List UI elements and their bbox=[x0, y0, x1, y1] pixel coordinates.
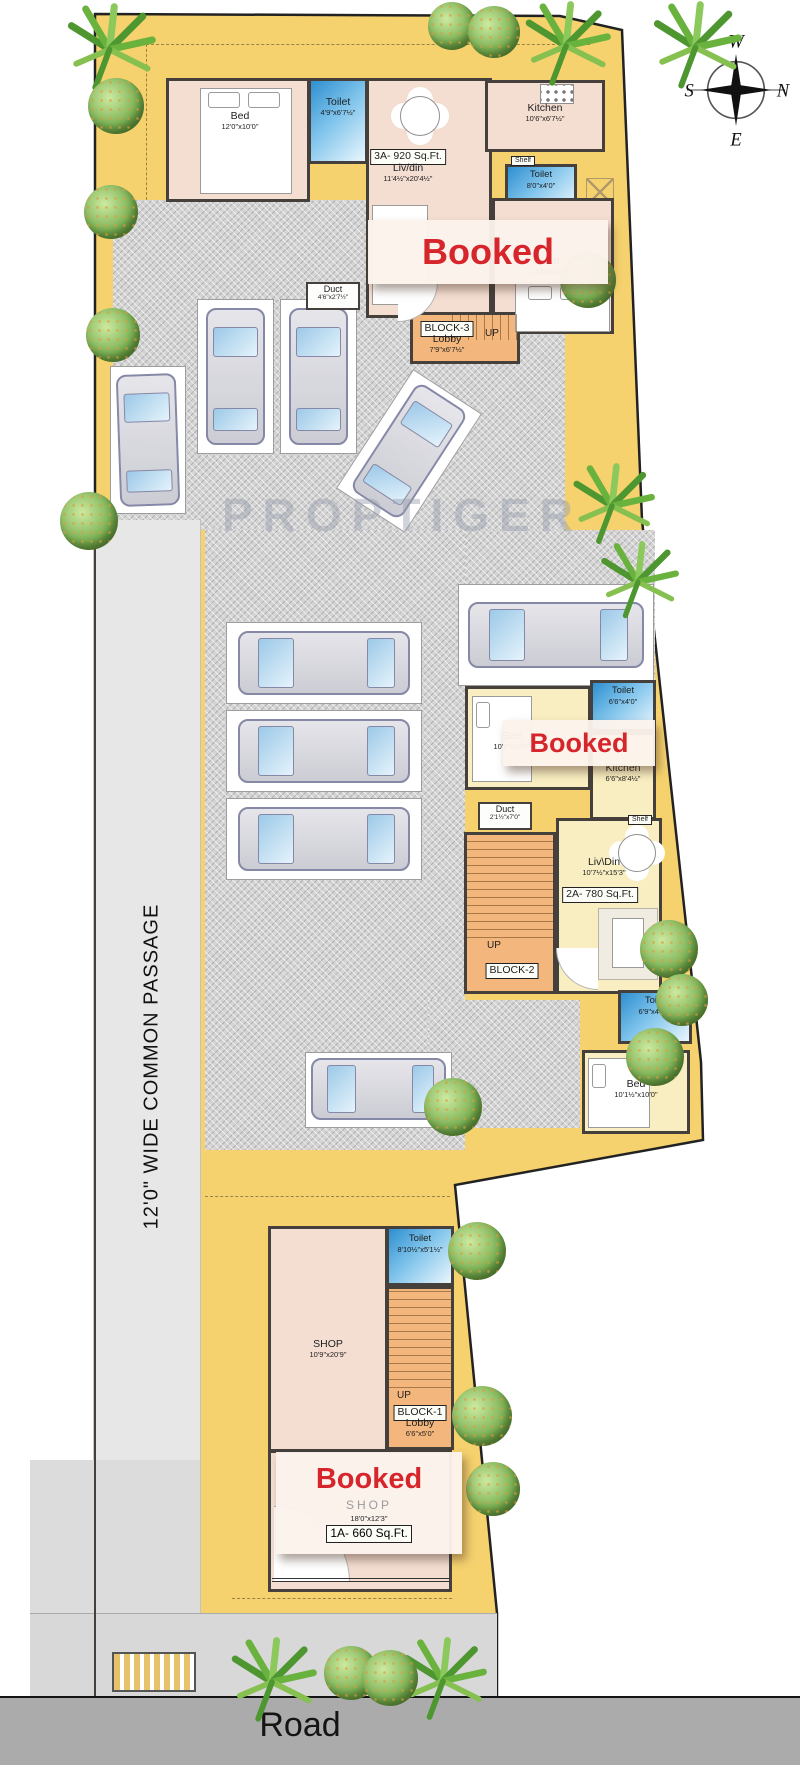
room-label: Kitchen 10'6"x6'7½" bbox=[525, 102, 564, 123]
sofa bbox=[612, 918, 644, 968]
bush-icon bbox=[86, 308, 140, 362]
shop2-dims: 18'0"x12'3" bbox=[351, 1514, 388, 1523]
gate-fence bbox=[112, 1652, 196, 1692]
up-label: UP bbox=[487, 940, 501, 951]
stairs bbox=[466, 834, 554, 938]
flat-area-label: 2A- 780 Sq.Ft. bbox=[562, 884, 638, 903]
room-name: Toilet bbox=[321, 96, 356, 108]
duct-label: Duct 4'6"x2'7½" bbox=[318, 284, 348, 302]
room-dims: 12'0"x10'0" bbox=[222, 122, 259, 131]
setback-line bbox=[205, 1196, 450, 1197]
bush-icon bbox=[424, 1078, 482, 1136]
room-dims: 10'1½"x10'0" bbox=[614, 1090, 657, 1099]
room-label: Toilet 4'9"x6'7½" bbox=[321, 96, 356, 117]
car bbox=[238, 719, 410, 783]
room-name: Kitchen bbox=[525, 102, 564, 114]
palm-tree-icon bbox=[648, 0, 743, 95]
room-dims: 6'6"x8'4½" bbox=[605, 774, 640, 783]
area-badge: 2A- 780 Sq.Ft. bbox=[562, 887, 638, 903]
bush-icon bbox=[626, 1028, 684, 1086]
booked-text: Booked bbox=[316, 1463, 422, 1496]
up-label: UP bbox=[397, 1390, 411, 1401]
block-badge: BLOCK-2 bbox=[486, 963, 539, 979]
bush-icon bbox=[468, 6, 520, 58]
pillow bbox=[208, 92, 240, 108]
room-dims: 2'1½"x7'0" bbox=[490, 814, 520, 822]
bush-icon bbox=[452, 1386, 512, 1446]
pillow bbox=[592, 1064, 606, 1088]
room-label: Bed 12'0"x10'0" bbox=[222, 110, 259, 131]
car bbox=[206, 308, 265, 445]
bush-icon bbox=[640, 920, 698, 978]
shelf-label: Shelf bbox=[628, 808, 652, 826]
car bbox=[238, 807, 410, 871]
room-dims: 10'9"x20'9" bbox=[310, 1350, 347, 1359]
bush-icon bbox=[362, 1650, 418, 1706]
palm-tree-icon bbox=[520, 0, 612, 92]
room-name: Liv\Din bbox=[582, 856, 625, 868]
room-name: SHOP bbox=[310, 1338, 347, 1350]
car bbox=[238, 631, 410, 695]
lobby-label: Lobby 6'6"x5'0" bbox=[406, 1417, 435, 1438]
room-dims: 4'9"x6'7½" bbox=[321, 108, 356, 117]
car bbox=[289, 308, 348, 445]
room-dims: 11'4½"x20'4½" bbox=[384, 174, 433, 183]
room-label: Toilet 8'10½"x5'1½" bbox=[397, 1234, 442, 1254]
pillow bbox=[528, 286, 552, 300]
room-label: Liv/din 11'4½"x20'4½" bbox=[384, 162, 433, 183]
palm-tree-icon bbox=[568, 462, 656, 550]
pillow bbox=[476, 702, 490, 728]
shop-front-line bbox=[272, 1578, 450, 1582]
booked-banner: Booked bbox=[368, 220, 608, 284]
car bbox=[116, 373, 181, 507]
pillow bbox=[248, 92, 280, 108]
booked-banner: Booked SHOP 18'0"x12'3" 1A- 660 Sq.Ft. bbox=[276, 1452, 462, 1554]
b3-toilet1-room bbox=[308, 78, 368, 164]
duct-label: Duct 2'1½"x7'0" bbox=[490, 804, 520, 822]
plot-west-line bbox=[94, 520, 96, 1696]
room-dims: 10'6"x6'7½" bbox=[525, 114, 564, 123]
room-dims: 4'6"x2'7½" bbox=[318, 294, 348, 302]
room-name: Lobby bbox=[430, 333, 465, 345]
room-label: SHOP 10'9"x20'9" bbox=[310, 1338, 347, 1359]
room-name: Toilet bbox=[527, 170, 556, 181]
block-label: BLOCK-2 bbox=[486, 960, 539, 979]
bush-icon bbox=[84, 185, 138, 239]
room-dims: 8'10½"x5'1½" bbox=[397, 1245, 442, 1254]
bush-icon bbox=[656, 974, 708, 1026]
room-dims: 8'0"x4'0" bbox=[527, 181, 556, 190]
shelf-label: Shelf bbox=[511, 149, 535, 167]
bush-icon bbox=[466, 1462, 520, 1516]
room-label: Liv\Din 10'7½"x15'3" bbox=[582, 856, 625, 877]
room-label: Toilet 8'0"x4'0" bbox=[527, 170, 556, 190]
stairs bbox=[388, 1288, 452, 1388]
passage-label: 12'0" WIDE COMMON PASSAGE bbox=[141, 897, 164, 1237]
room-label: Toilet 6'6"x4'0" bbox=[609, 686, 638, 706]
bush-icon bbox=[88, 78, 144, 134]
palm-tree-icon bbox=[596, 540, 680, 624]
up-label: UP bbox=[485, 328, 499, 339]
room-name: Bed bbox=[222, 110, 259, 122]
room-name: Duct bbox=[490, 804, 520, 814]
room-dims: 7'9"x6'7½" bbox=[430, 345, 465, 354]
compass-east: E bbox=[729, 130, 742, 150]
bush-icon bbox=[448, 1222, 506, 1280]
room-dims: 10'7½"x15'3" bbox=[582, 868, 625, 877]
room-dims: 6'6"x5'0" bbox=[406, 1429, 435, 1438]
room-name: Duct bbox=[318, 284, 348, 294]
area-badge: 1A- 660 Sq.Ft. bbox=[326, 1525, 411, 1543]
room-name: Toilet bbox=[397, 1234, 442, 1245]
shelf-badge: Shelf bbox=[628, 815, 652, 825]
watermark: PROPTIGER bbox=[222, 488, 583, 542]
lobby-label: Lobby 7'9"x6'7½" bbox=[430, 333, 465, 354]
room-name: Toilet bbox=[609, 686, 638, 697]
booked-text: Booked bbox=[422, 231, 554, 273]
site-plan: Road 12'0" WIDE COMMON PASSAGE Bed bbox=[0, 0, 800, 1781]
setback-line bbox=[232, 1598, 452, 1599]
shelf-badge: Shelf bbox=[511, 156, 535, 166]
dining-table bbox=[400, 96, 440, 136]
shop2-name: SHOP bbox=[346, 1498, 392, 1512]
room-name: Lobby bbox=[406, 1417, 435, 1429]
bush-icon bbox=[60, 492, 118, 550]
room-dims: 6'6"x4'0" bbox=[609, 697, 638, 706]
compass-north: N bbox=[776, 81, 791, 102]
palm-tree-icon bbox=[226, 1636, 318, 1728]
booked-banner: Booked bbox=[503, 720, 655, 766]
booked-text: Booked bbox=[529, 728, 628, 759]
room-name: Liv/din bbox=[384, 162, 433, 174]
